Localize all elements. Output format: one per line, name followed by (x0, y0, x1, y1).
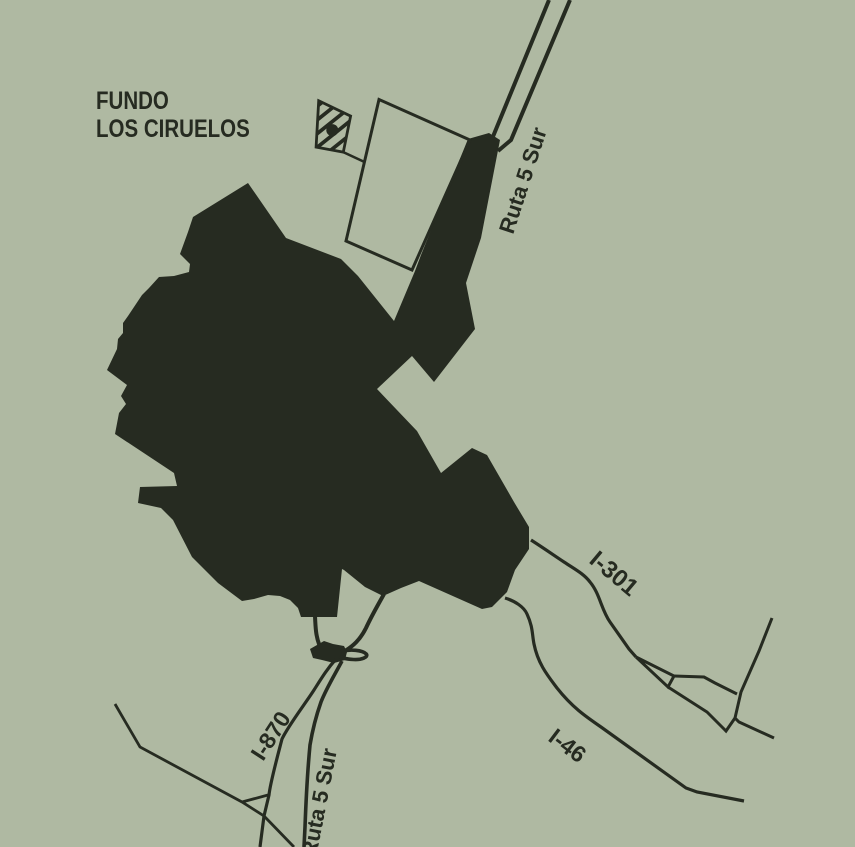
svg-text:FUNDO: FUNDO (96, 86, 169, 114)
svg-text:LOS CIRUELOS: LOS CIRUELOS (96, 114, 250, 142)
